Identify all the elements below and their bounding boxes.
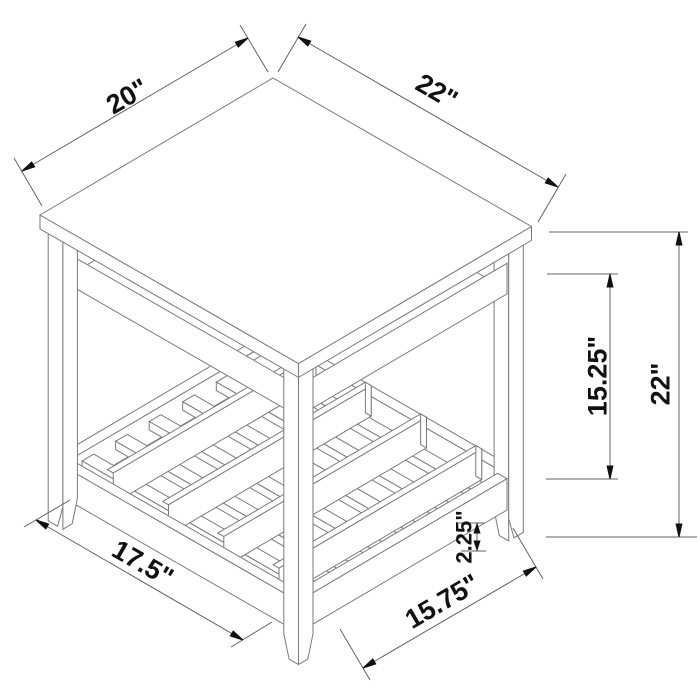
table-face xyxy=(284,364,299,664)
table-face xyxy=(299,364,314,664)
table-face xyxy=(365,382,371,416)
table-face xyxy=(421,414,427,448)
table-dimension-diagram: 20" 22" 15.25" 22" 17.5" 15.75" 2.25" xyxy=(0,0,700,700)
table-face xyxy=(48,229,63,526)
dim-label-shelf-rail-height: 2.25" xyxy=(452,510,477,563)
table-face xyxy=(476,446,482,480)
table-face xyxy=(509,240,524,537)
dim-label-overall-height: 22" xyxy=(645,363,675,406)
table-face xyxy=(63,229,78,530)
dim-label-inner-height: 15.25" xyxy=(582,336,612,416)
diagram-canvas: 20" 22" 15.25" 22" 17.5" 15.75" 2.25" xyxy=(0,0,700,700)
